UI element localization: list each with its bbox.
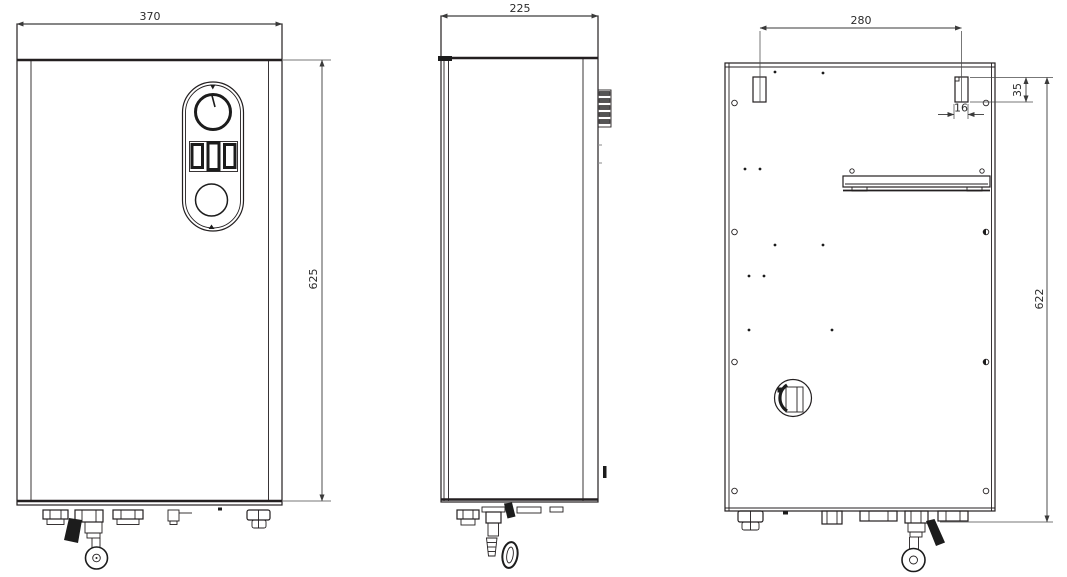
slot-spacing-value: 280 [851,14,872,27]
side-depth-value: 225 [510,2,531,15]
rocker-switch-2-face [210,145,218,169]
side-flat-fitting-3 [550,507,563,512]
front-height-value: 625 [307,269,320,290]
dimension-front-width: 370 [17,10,282,24]
small-fitting [168,510,192,525]
side-flat-fitting-1 [482,507,505,512]
side-front-lip [438,56,452,61]
front-view: 370 625 [17,10,331,569]
front-width-value: 370 [140,10,161,23]
cable-opening [775,380,812,417]
back-outline [725,63,995,511]
side-view: 225 [438,2,611,569]
cable-gland-back [738,511,763,530]
pressure-gauge [196,184,228,216]
side-drain-valve[interactable] [486,503,519,569]
slot-width-value: 16 [954,102,968,115]
back-nipple [822,511,842,524]
rocker-switch-1-face [194,146,202,166]
boiler-technical-drawing: 370 625 [0,0,1067,577]
side-bottom-fittings [457,503,563,569]
back-view: 280 35 16 622 [725,14,1053,572]
pipe-fitting-center [113,510,143,525]
dimension-slot-height: 35 [970,78,1053,103]
back-stud [783,511,788,515]
front-bottom-fittings [43,508,270,570]
slot-height-value: 35 [1011,83,1024,97]
valve-handle[interactable] [64,518,82,543]
side-drain-stub [603,466,607,478]
bottom-stud [218,508,222,511]
dimension-front-height: 625 [283,60,331,501]
back-pipe-fitting-1 [860,511,897,521]
back-panel-holes [732,100,989,494]
back-height-value: 622 [1033,289,1046,310]
dimension-side-depth: 225 [441,2,598,16]
rocker-switch-3-face [226,146,234,166]
control-panel [183,82,244,231]
back-bottom-fittings [738,511,968,572]
wall-bracket [843,169,990,191]
side-valve-handle[interactable] [504,503,516,519]
bracket-screw-left [850,169,854,173]
back-valve-knob[interactable] [902,549,925,572]
ribbed-cable-entry [598,90,611,127]
bracket-screw-right [980,169,984,173]
fill-drain-valve[interactable] [64,510,108,569]
mounting-slot-left [753,77,766,102]
side-outline [441,16,598,502]
knob-indicator [212,96,215,108]
side-flat-fitting-2 [517,507,541,513]
rocker-switch-group[interactable] [190,141,238,172]
side-valve-knob[interactable] [501,541,519,569]
spot-weld-dots [744,71,834,332]
dimension-slot-width: 16 [938,102,984,120]
back-valve-handle[interactable] [926,519,945,546]
dimension-slot-spacing: 280 [760,14,962,102]
drawing-canvas: 370 625 [0,0,1067,577]
cable-gland-front [247,510,270,528]
side-pipe-fitting [457,510,479,525]
front-outline [17,24,282,505]
knob-pointer-mark [210,85,216,90]
dimension-back-height: 622 [940,78,1053,523]
panel-bottom-mark [209,225,215,230]
pipe-fitting-left [43,510,68,525]
back-pipe-fitting-2 [938,511,968,521]
